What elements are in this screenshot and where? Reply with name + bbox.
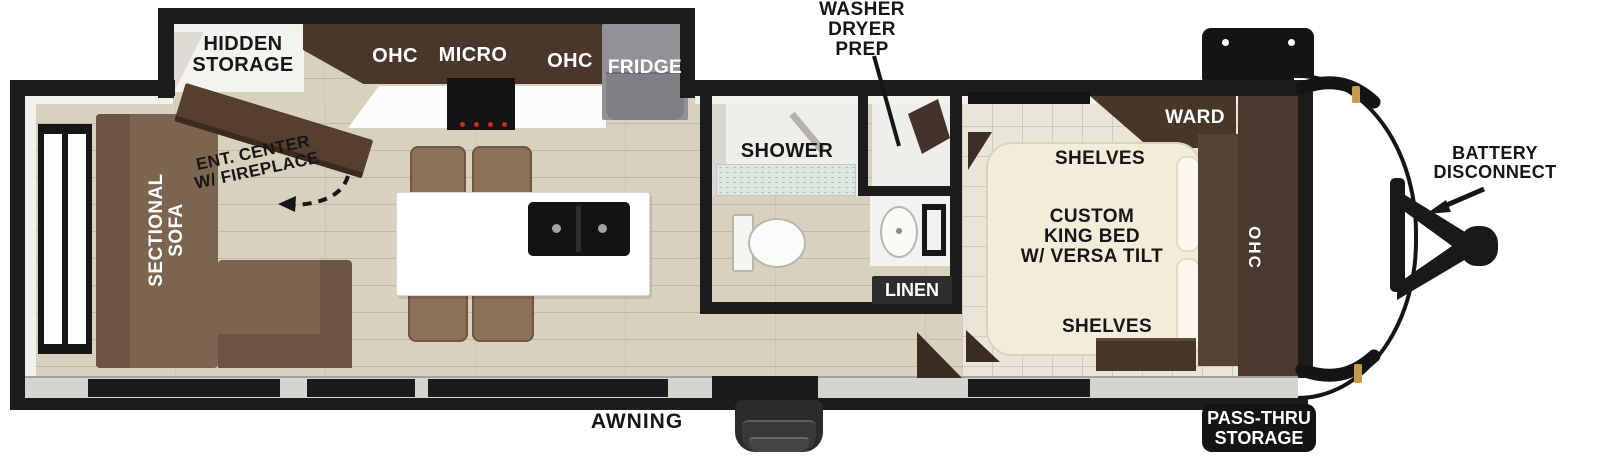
burner-knob [502, 122, 507, 127]
wall [858, 80, 868, 196]
rear-window-pane [68, 134, 86, 344]
faucet [598, 224, 607, 233]
mirror [922, 204, 946, 256]
wall [158, 8, 695, 24]
shower-label: SHOWER [712, 140, 862, 164]
window [307, 379, 415, 397]
hidden-storage-label: HIDDEN STORAGE [177, 32, 309, 78]
ohc-left-label: OHC [365, 46, 425, 68]
ohc-right-label: OHC [540, 51, 600, 73]
rear-window-pane [44, 134, 62, 344]
pass-thru-storage-badge: PASS-THRU STORAGE [1202, 404, 1316, 452]
linen-badge: LINEN [872, 276, 952, 304]
rear-window [38, 124, 92, 354]
window [88, 379, 280, 397]
sofa-armrest [320, 260, 352, 338]
wall [700, 80, 712, 314]
roof-box-screw [1222, 39, 1229, 46]
bedroom-ohc-label: OHC [1220, 222, 1288, 274]
burner-knob [488, 122, 493, 127]
washer-dryer-label: WASHER DRYER PREP [808, 0, 916, 60]
hitch-coupler [1460, 226, 1498, 266]
toilet-bowl [748, 218, 806, 268]
island-chair [472, 146, 532, 198]
drain [896, 228, 902, 234]
battery-arrowhead [1426, 200, 1451, 214]
floorplan-canvas: SECTIONAL SOFA ENT. CENTER W/ FIREPLACE … [0, 0, 1600, 456]
roof-box-screw [1288, 39, 1295, 46]
window [968, 379, 1090, 397]
window [968, 92, 1090, 104]
stove [447, 78, 515, 130]
washer-dryer-closet [872, 96, 950, 186]
micro-label: MICRO [442, 45, 504, 67]
shower-pan [716, 164, 856, 196]
faucet [552, 224, 561, 233]
shelves-top-label: SHELVES [1032, 148, 1168, 170]
battery-disconnect-label: BATTERY DISCONNECT [1410, 140, 1580, 186]
wall-lining [25, 96, 173, 104]
battery-arrow [1440, 189, 1484, 208]
nightstand [1096, 338, 1196, 371]
entry-step [749, 437, 809, 452]
wall [10, 80, 25, 410]
mirror-glass [927, 210, 941, 250]
king-bed-label: CUSTOM KING BED W/ VERSA TILT [1002, 202, 1182, 272]
wall [858, 186, 962, 196]
fridge-label: FRIDGE [602, 56, 688, 80]
burner-knob [460, 122, 465, 127]
sofa-backrest [218, 334, 352, 368]
window [428, 379, 668, 397]
island-chair [408, 290, 468, 342]
island-sink [528, 202, 630, 256]
wall [10, 80, 175, 96]
awning-label: AWNING [580, 408, 694, 436]
burner-knob [474, 122, 479, 127]
wall [1298, 80, 1313, 378]
wall-lining [25, 96, 36, 376]
ward-label: WARD [1147, 106, 1243, 130]
entry-door-opening [712, 376, 818, 400]
vanity-sink [880, 206, 918, 258]
island-chair [472, 290, 534, 342]
island-chair [410, 146, 466, 198]
shelves-bottom-label: SHELVES [1039, 316, 1175, 338]
sink-divider [576, 206, 581, 252]
